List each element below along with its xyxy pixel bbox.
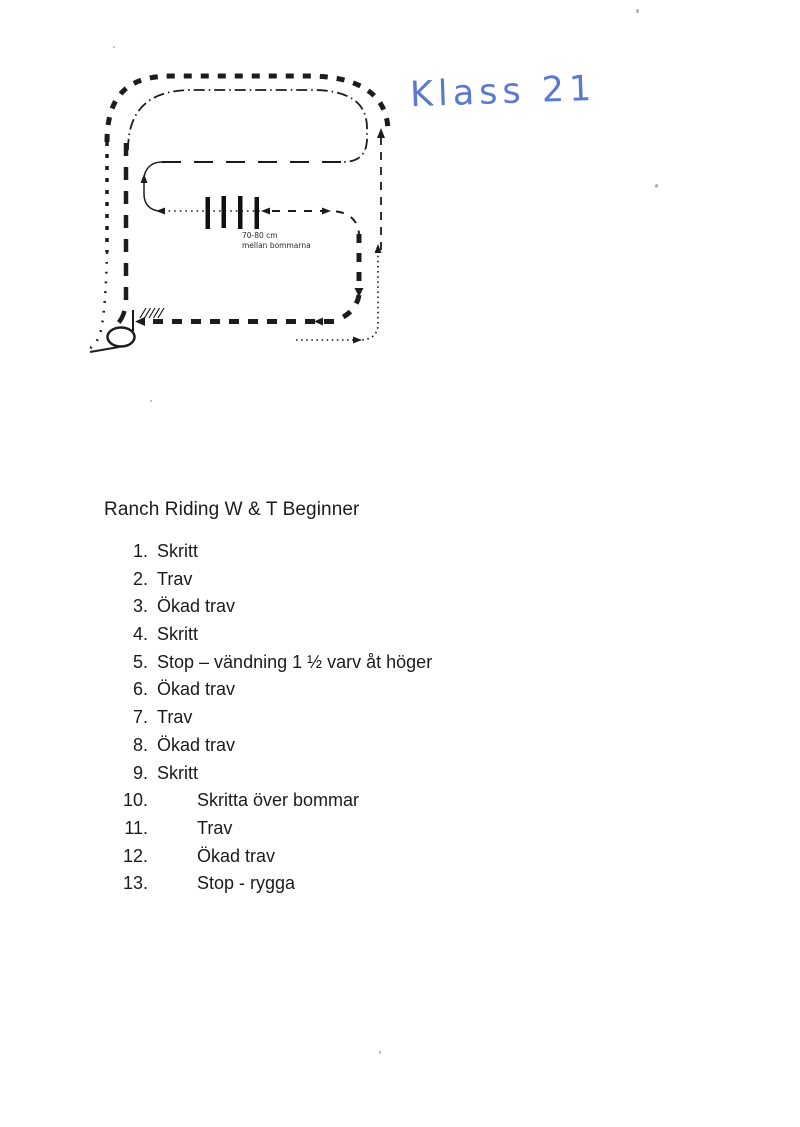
poles-distance-label-line1: 70-80 cm bbox=[242, 231, 278, 240]
pattern-step: 6.Ökad trav bbox=[104, 676, 432, 704]
step-number: 7. bbox=[104, 704, 148, 732]
step-label: Trav bbox=[157, 704, 192, 732]
arrow-left-bottom-mid bbox=[314, 318, 323, 326]
step-number: 13. bbox=[104, 870, 148, 898]
scan-speck bbox=[636, 9, 639, 13]
step-label: Ökad trav bbox=[157, 732, 235, 760]
course-path-bottom-dotted bbox=[296, 255, 378, 340]
arrow-up-left-uturn bbox=[141, 174, 148, 183]
step-number: 2. bbox=[104, 566, 148, 594]
pattern-steps: 1.Skritt2.Trav3.Ökad trav4.Skritt5.Stop … bbox=[104, 538, 432, 898]
arrow-right-mid-dash bbox=[322, 208, 331, 215]
step-number: 6. bbox=[104, 676, 148, 704]
scanned-document-page: 70-80 cm mellan bommarna bbox=[0, 0, 800, 1127]
step-number: 9. bbox=[104, 760, 148, 788]
pattern-step: 3.Ökad trav bbox=[104, 593, 432, 621]
pattern-step: 4.Skritt bbox=[104, 621, 432, 649]
pattern-step: 13.Stop - rygga bbox=[104, 870, 432, 898]
pattern-step: 7.Trav bbox=[104, 704, 432, 732]
start-marker-ground-line bbox=[90, 347, 119, 352]
step-number: 8. bbox=[104, 732, 148, 760]
step-number: 12. bbox=[104, 843, 148, 871]
step-label: Ökad trav bbox=[197, 843, 275, 871]
pattern-step: 2.Trav bbox=[104, 566, 432, 594]
arrow-left-poles-outer bbox=[156, 208, 165, 215]
poles-distance-label-line2: mellan bommarna bbox=[242, 241, 311, 250]
step-label: Stop - rygga bbox=[197, 870, 295, 898]
step-number: 3. bbox=[104, 593, 148, 621]
step-number: 4. bbox=[104, 621, 148, 649]
stop-hatch-marks bbox=[140, 308, 164, 318]
step-label: Ökad trav bbox=[157, 676, 235, 704]
course-path-bottom-right-curve bbox=[334, 295, 359, 321]
step-label: Ökad trav bbox=[157, 593, 235, 621]
course-path-inner-left bbox=[113, 143, 126, 328]
start-marker-circle bbox=[108, 328, 135, 347]
step-label: Stop – vändning 1 ½ varv åt höger bbox=[157, 649, 432, 677]
arrow-left-bottom-end bbox=[135, 317, 145, 326]
ground-pole bbox=[238, 196, 243, 229]
arrow-right-bottom-dotted bbox=[353, 337, 362, 344]
ground-pole bbox=[222, 196, 227, 228]
handwritten-class-label: Klass 21 bbox=[409, 69, 597, 115]
course-path-outer-top bbox=[107, 76, 388, 142]
pattern-step: 9.Skritt bbox=[104, 760, 432, 788]
pattern-step: 11.Trav bbox=[104, 815, 432, 843]
course-path-inner-top-loop bbox=[128, 90, 367, 162]
pattern-title: Ranch Riding W & T Beginner bbox=[104, 499, 359, 521]
arrow-left-poles-inner bbox=[261, 208, 270, 215]
scan-speck bbox=[150, 400, 152, 402]
arrow-up-right-vertical bbox=[377, 128, 385, 138]
ground-pole bbox=[206, 197, 211, 229]
step-label: Skritta över bommar bbox=[197, 787, 359, 815]
step-label: Skritt bbox=[157, 760, 198, 788]
course-diagram: 70-80 cm mellan bommarna bbox=[0, 0, 800, 400]
step-number: 11. bbox=[104, 815, 148, 843]
step-label: Skritt bbox=[157, 621, 198, 649]
step-number: 5. bbox=[104, 649, 148, 677]
course-path-left-uturn bbox=[144, 162, 162, 211]
step-label: Trav bbox=[197, 815, 232, 843]
pattern-step: 12.Ökad trav bbox=[104, 843, 432, 871]
course-path-mid-dash-right bbox=[272, 211, 359, 234]
step-number: 10. bbox=[104, 787, 148, 815]
step-label: Skritt bbox=[157, 538, 198, 566]
ground-poles bbox=[206, 196, 260, 229]
pattern-step: 8.Ökad trav bbox=[104, 732, 432, 760]
pattern-step: 10.Skritta över bommar bbox=[104, 787, 432, 815]
scan-speck bbox=[113, 46, 115, 48]
step-label: Trav bbox=[157, 566, 192, 594]
ground-pole bbox=[255, 197, 260, 229]
course-path-outer-left-lower bbox=[89, 252, 107, 349]
scan-speck bbox=[379, 1051, 381, 1054]
pattern-step: 5.Stop – vändning 1 ½ varv åt höger bbox=[104, 649, 432, 677]
pattern-step: 1.Skritt bbox=[104, 538, 432, 566]
step-number: 1. bbox=[104, 538, 148, 566]
